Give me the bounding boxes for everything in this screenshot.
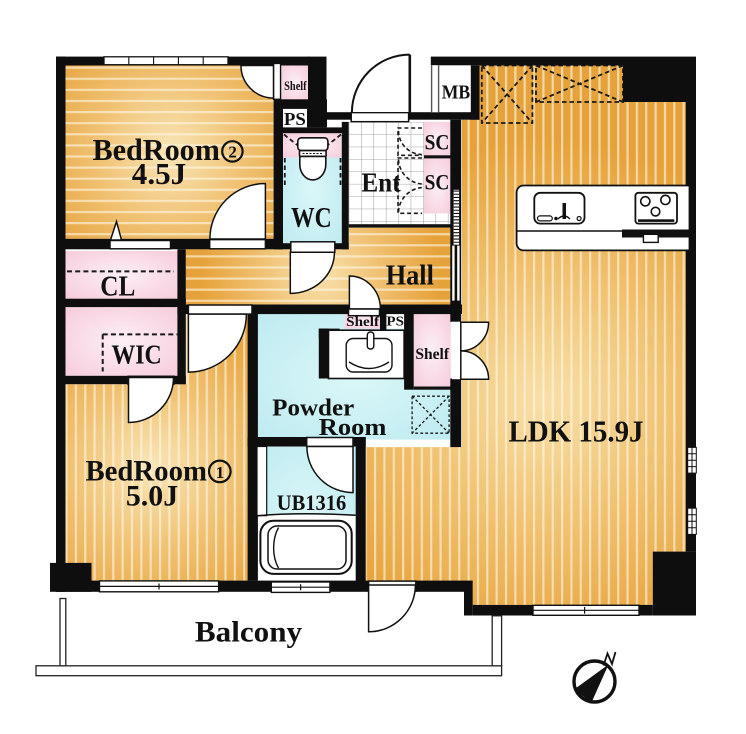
svg-text:UB1316: UB1316 [277,490,346,515]
svg-text:Balcony: Balcony [195,616,302,649]
svg-text:PS: PS [284,109,306,129]
svg-text:Ent: Ent [361,168,400,198]
svg-text:SC: SC [425,170,450,195]
svg-text:2: 2 [228,143,237,162]
svg-text:1: 1 [216,463,225,482]
svg-text:PS: PS [386,315,404,330]
svg-text:WIC: WIC [112,340,162,370]
svg-text:Shelf: Shelf [415,346,449,363]
svg-text:Room: Room [319,415,387,441]
svg-text:Hall: Hall [386,260,434,292]
svg-text:5.0J: 5.0J [126,480,178,513]
svg-text:WC: WC [291,203,332,234]
svg-text:Shelf: Shelf [284,78,307,93]
svg-text:LDK 15.9J: LDK 15.9J [508,414,643,449]
svg-text:Shelf: Shelf [346,315,379,330]
svg-text:4.5J: 4.5J [132,156,186,191]
svg-text:SC: SC [425,130,450,155]
svg-text:CL: CL [100,271,135,303]
svg-text:MB: MB [442,81,470,103]
